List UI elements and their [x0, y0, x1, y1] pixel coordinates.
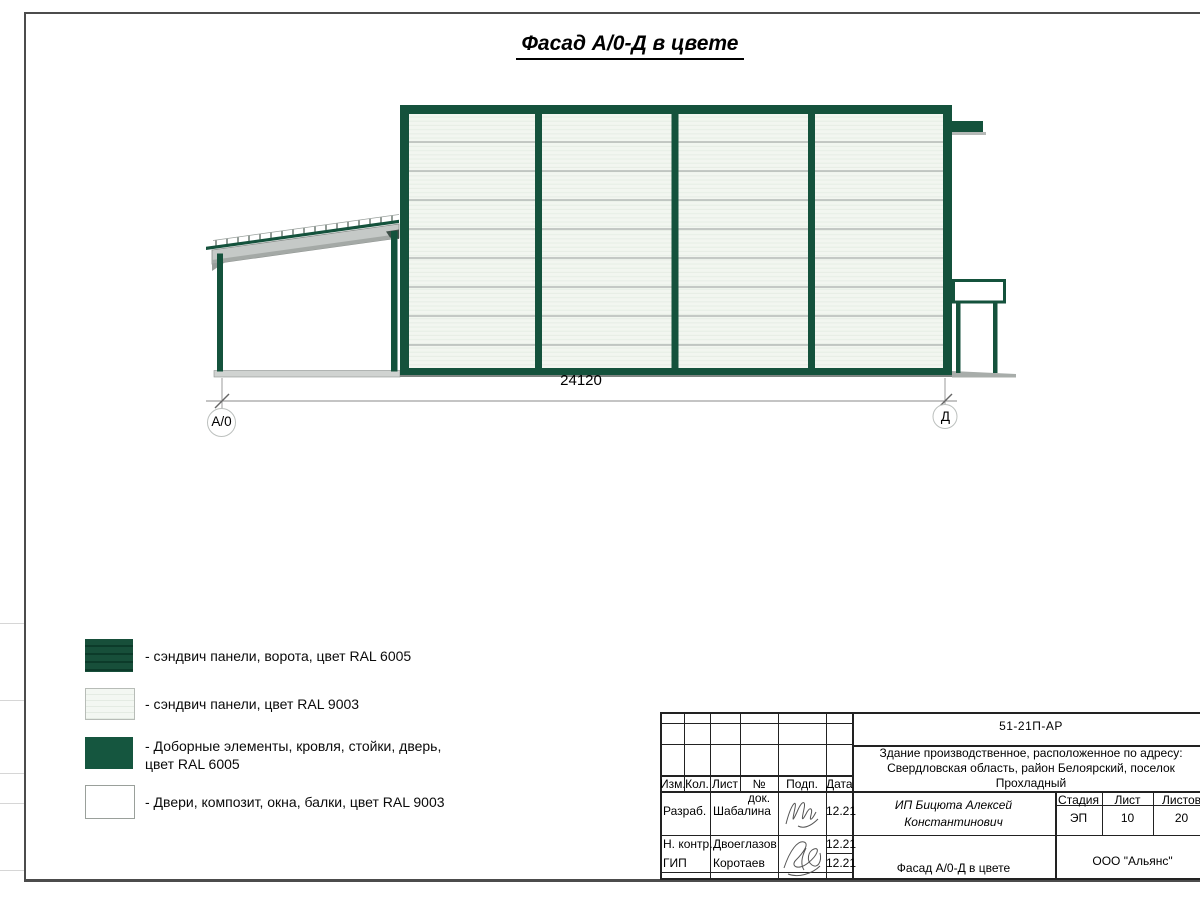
legend-label: - Доборные элементы, кровля, стойки, две… — [145, 737, 535, 773]
canopy-post-left — [217, 254, 223, 372]
col-izm: Изм. — [660, 777, 684, 791]
stage-label: Стадия — [1055, 793, 1102, 807]
porch-post-right — [993, 303, 998, 373]
legend-swatch-panel-ral9003 — [85, 688, 135, 720]
organization-name: ООО "Альянс" — [1055, 854, 1200, 868]
stage-value: ЭП — [1055, 811, 1102, 825]
legend-label: - сэндвич панели, цвет RAL 9003 — [145, 695, 535, 713]
signature-marks — [778, 792, 826, 880]
drawing-sheet: Фасад А/0-Д в цвете — [0, 0, 1200, 900]
col-kol: Кол. — [684, 777, 710, 791]
name-nkontr: Двоеглазов — [713, 837, 777, 851]
date-gip: 12.21 — [826, 856, 852, 870]
gutter-outlet — [952, 121, 983, 132]
col-dok: № док. — [740, 777, 778, 805]
role-nkontr: Н. контр. — [663, 837, 713, 851]
role-razrab: Разраб. — [663, 804, 706, 818]
project-address: Здание производственное, расположенное п… — [854, 746, 1200, 791]
sheet-label: Лист — [1102, 793, 1153, 807]
doc-number: 51-21П-АР — [852, 719, 1200, 733]
base-strip-left — [214, 371, 400, 378]
canopy-post-right — [391, 231, 398, 372]
legend-swatch-gate-ral6005 — [85, 639, 133, 672]
name-razrab: Шабалина — [713, 804, 771, 818]
legend-label: - Двери, композит, окна, балки, цвет RAL… — [145, 793, 535, 811]
legend-swatch-doors-ral9003 — [85, 785, 135, 819]
legend-swatch-trim-ral6005 — [85, 737, 133, 769]
legend-label: - сэндвич панели, ворота, цвет RAL 6005 — [145, 647, 535, 665]
axis-label-d: Д — [937, 409, 954, 424]
porch-post-left — [956, 303, 961, 373]
name-gip: Коротаев — [713, 856, 765, 870]
col-data: Дата — [826, 777, 852, 791]
drawing-title: Фасад А/0-Д в цвете — [852, 861, 1055, 875]
porch-canopy-box — [954, 281, 1005, 303]
sheet-value: 10 — [1102, 811, 1153, 825]
customer-name: ИП Бицюта Алексей Константинович — [852, 797, 1055, 831]
col-podp: Подп. — [778, 777, 826, 791]
title-block: Изм. Кол. Лист № док. Подп. Дата Разраб.… — [660, 712, 1200, 880]
sheets-label: Листов — [1153, 793, 1200, 807]
col-list: Лист — [710, 777, 740, 791]
dimension-value: 24120 — [531, 372, 631, 389]
base-strip-right — [952, 371, 1016, 378]
role-gip: ГИП — [663, 856, 687, 870]
date-nkontr: 12.21 — [826, 837, 852, 851]
date-razrab: 12.21 — [826, 804, 852, 818]
gutter-shadow — [952, 132, 986, 135]
axis-label-a0: А/0 — [206, 414, 237, 429]
sheets-value: 20 — [1153, 811, 1200, 825]
